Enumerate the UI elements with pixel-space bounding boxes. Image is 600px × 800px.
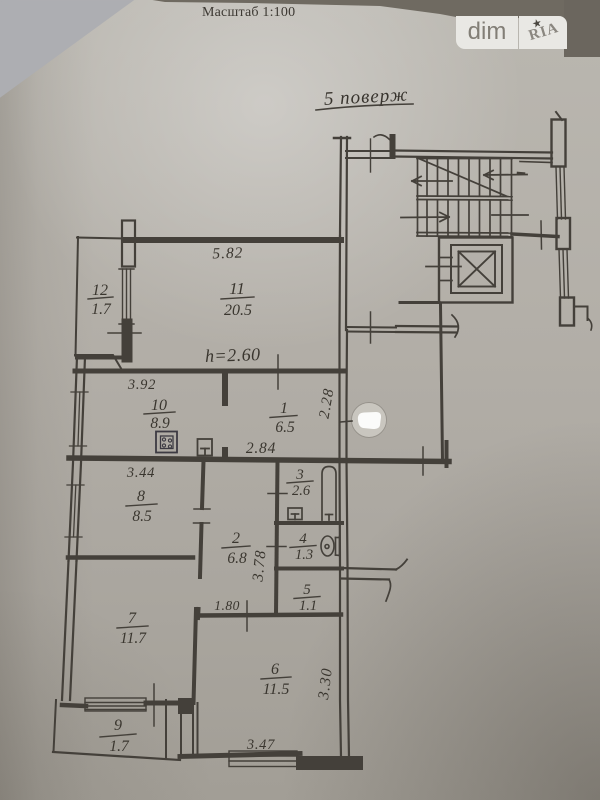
svg-text:1.1: 1.1 <box>299 598 317 614</box>
svg-text:7: 7 <box>128 610 137 627</box>
svg-text:8.5: 8.5 <box>132 508 152 525</box>
svg-text:5: 5 <box>303 582 311 598</box>
svg-text:3.92: 3.92 <box>127 377 156 393</box>
svg-text:3.30: 3.30 <box>315 667 336 702</box>
svg-text:8: 8 <box>137 488 145 505</box>
svg-text:6: 6 <box>271 661 279 678</box>
svg-text:h=2.60: h=2.60 <box>205 344 261 366</box>
svg-text:6.8: 6.8 <box>227 550 247 567</box>
svg-text:2: 2 <box>232 530 240 547</box>
svg-text:3: 3 <box>295 467 304 483</box>
svg-text:1.80: 1.80 <box>214 598 240 613</box>
svg-text:6.5: 6.5 <box>275 419 295 436</box>
svg-text:1.3: 1.3 <box>295 547 313 563</box>
svg-text:2.6: 2.6 <box>292 483 311 499</box>
svg-text:3.44: 3.44 <box>126 465 155 481</box>
svg-text:2.28: 2.28 <box>317 387 338 420</box>
svg-text:11.5: 11.5 <box>263 681 290 698</box>
svg-text:8.9: 8.9 <box>150 415 170 432</box>
svg-text:1.7: 1.7 <box>109 738 130 755</box>
svg-text:3.78: 3.78 <box>249 549 269 584</box>
svg-text:4: 4 <box>299 531 307 547</box>
svg-text:1: 1 <box>280 400 288 417</box>
svg-text:11: 11 <box>229 279 245 298</box>
svg-text:20.5: 20.5 <box>224 302 252 319</box>
svg-text:11.7: 11.7 <box>120 630 147 647</box>
svg-text:12: 12 <box>92 282 108 299</box>
svg-text:9: 9 <box>114 717 122 734</box>
svg-text:10: 10 <box>151 397 167 414</box>
svg-text:5.82: 5.82 <box>212 244 244 262</box>
svg-text:2.84: 2.84 <box>246 440 276 457</box>
svg-text:3.47: 3.47 <box>246 737 275 753</box>
svg-text:1.7: 1.7 <box>91 301 112 318</box>
